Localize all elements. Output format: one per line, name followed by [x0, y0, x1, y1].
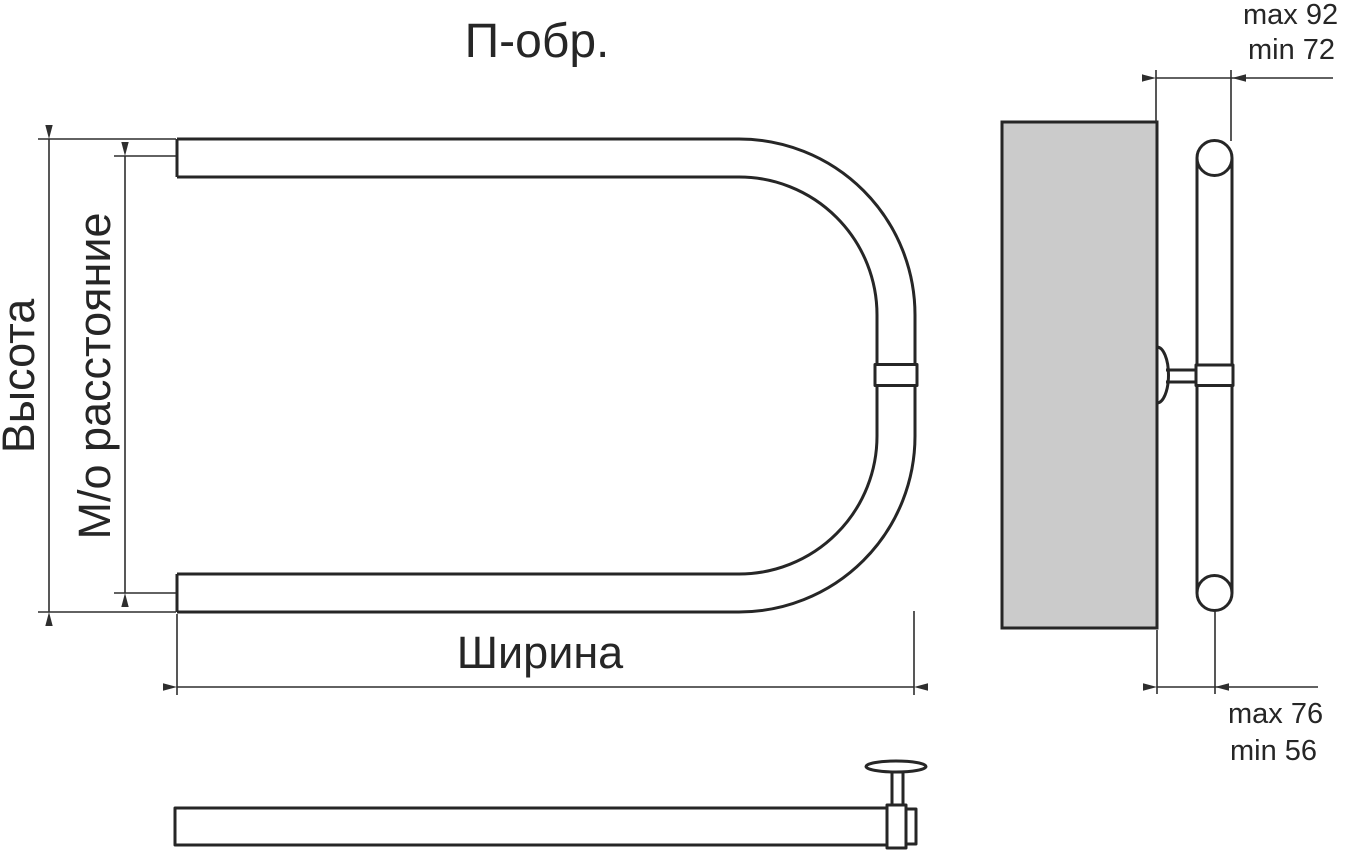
top-clearance-max: max 92 — [1243, 0, 1338, 31]
top-clearance-dimension: max 92 min 72 — [1156, 0, 1338, 141]
bottom-view — [175, 761, 926, 848]
towel-rail-top-view-tube — [175, 808, 906, 845]
valve-stem — [892, 772, 903, 806]
tube-top-cap — [1197, 141, 1232, 176]
bracket-collar — [1196, 365, 1233, 386]
valve-handle — [866, 761, 926, 772]
tube-bottom-cap — [1197, 576, 1232, 611]
wall — [1002, 122, 1157, 628]
height-label: Высота — [0, 298, 44, 454]
bottom-clearance-max: max 76 — [1228, 698, 1323, 730]
valve-body — [887, 805, 906, 848]
towel-rail-drawing: П-обр. Высота М/о расстояние Ширина — [0, 0, 1349, 850]
width-dimension: Ширина — [177, 611, 914, 695]
towel-rail-front-outline — [177, 139, 915, 612]
top-clearance-min: min 72 — [1248, 34, 1335, 66]
wall-escutcheon — [1157, 347, 1169, 403]
width-label: Ширина — [457, 627, 624, 678]
bottom-clearance-dimension: max 76 min 56 — [1157, 611, 1323, 767]
technical-drawing-page: П-обр. Высота М/о расстояние Ширина — [0, 0, 1349, 850]
front-view: П-обр. Высота М/о расстояние Ширина — [0, 15, 917, 695]
side-view: max 92 min 72 max 76 min 56 — [1002, 0, 1338, 767]
drawing-title: П-обр. — [465, 15, 610, 68]
center-distance-label: М/о расстояние — [69, 212, 120, 539]
bracket-arm — [1166, 370, 1198, 382]
bottom-clearance-min: min 56 — [1230, 735, 1317, 767]
union-fitting — [875, 365, 917, 386]
valve-end-cap — [906, 809, 916, 844]
center-distance-dimension: М/о расстояние — [69, 156, 176, 593]
